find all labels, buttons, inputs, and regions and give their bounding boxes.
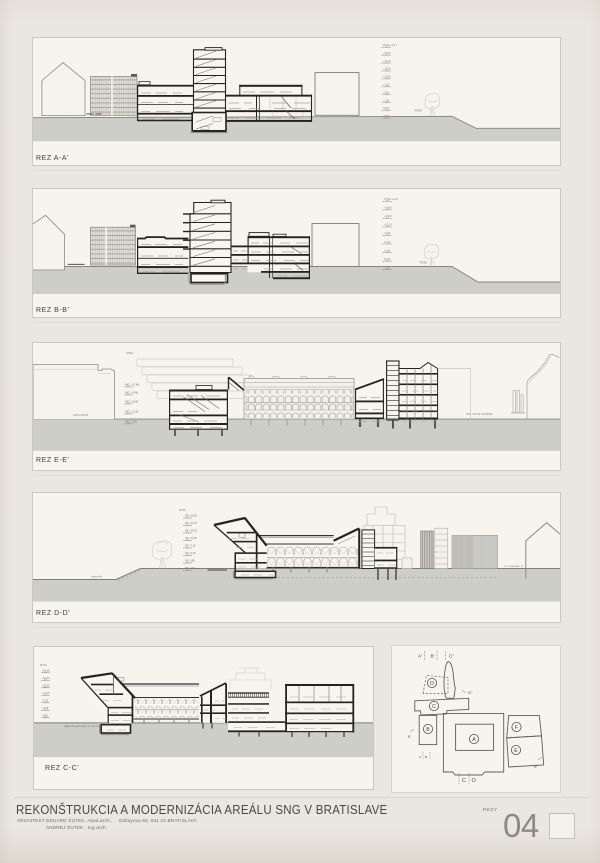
svg-text:A: A <box>472 737 476 743</box>
svg-text:TERÉN: TERÉN <box>414 110 422 113</box>
svg-text:B': B' <box>431 654 435 659</box>
svg-text:+7,15: +7,15 <box>42 699 49 702</box>
svg-text:+5,70: +5,70 <box>384 241 391 244</box>
svg-text:+12,30: +12,30 <box>384 224 392 227</box>
svg-text:C'': C'' <box>449 654 454 659</box>
svg-text:HP +11,25: HP +11,25 <box>185 537 197 540</box>
svg-text:+3,05: +3,05 <box>42 707 49 710</box>
svg-text:HP +15,35: HP +15,35 <box>185 530 197 533</box>
svg-text:HP +3,05: HP +3,05 <box>185 552 196 555</box>
svg-text:±0,00: ±0,00 <box>383 107 390 110</box>
svg-text:D: D <box>430 681 434 687</box>
svg-text:+9,00: +9,00 <box>384 232 391 235</box>
svg-text:-0,85: -0,85 <box>42 714 48 717</box>
svg-text:B: B <box>426 727 430 733</box>
svg-text:ATIKA: ATIKA <box>126 352 133 355</box>
svg-text:E: E <box>514 748 518 754</box>
svg-text:TERÉN: TERÉN <box>419 262 427 265</box>
svg-text:+15,60: +15,60 <box>384 215 392 218</box>
svg-text:D'': D'' <box>468 690 473 695</box>
svg-text:KOTA: KOTA <box>179 509 186 512</box>
svg-text:-3,30: -3,30 <box>383 115 389 118</box>
svg-text:E: E <box>408 734 411 739</box>
svg-text:HP +21,45: HP +21,45 <box>185 522 197 525</box>
svg-text:A: A <box>419 755 421 759</box>
svg-text:F: F <box>515 725 518 731</box>
svg-text:E'': E'' <box>534 764 538 769</box>
svg-text:+4,50: +4,50 <box>383 91 390 94</box>
svg-text:KOTA: KOTA <box>40 664 47 667</box>
svg-text:+7,20: +7,20 <box>383 84 390 87</box>
svg-text:C: C <box>432 704 436 710</box>
svg-text:NÁBREŽIE: NÁBREŽIE <box>91 576 102 579</box>
svg-text:O: O <box>472 778 477 784</box>
svg-text:+18,90: +18,90 <box>384 207 392 210</box>
svg-text:+2,40: +2,40 <box>384 249 391 252</box>
svg-text:C: C <box>462 778 466 784</box>
svg-text:±0,00: ±0,00 <box>384 258 391 261</box>
svg-text:+11,25: +11,25 <box>42 692 50 695</box>
svg-text:+13,80: +13,80 <box>383 68 391 71</box>
svg-text:+20,40: +20,40 <box>383 52 391 55</box>
svg-text:HP +7,15: HP +7,15 <box>185 545 196 548</box>
svg-text:POLOHA NÁBR. M: POLOHA NÁBR. M <box>504 565 523 568</box>
svg-text:+10,50: +10,50 <box>383 76 391 79</box>
svg-text:A': A' <box>418 654 422 659</box>
svg-text:-3,30: -3,30 <box>384 266 390 269</box>
svg-text:NÁBREŽIE ARM.GEN.L.SVOBODU: NÁBREŽIE ARM.GEN.L.SVOBODU <box>64 725 99 728</box>
svg-text:SNG VODNÉ KASÁRNE: SNG VODNÉ KASÁRNE <box>466 413 493 416</box>
svg-text:B': B' <box>425 755 428 759</box>
svg-text:ATIKA +21,0: ATIKA +21,0 <box>384 198 399 201</box>
svg-text:HP +24,05: HP +24,05 <box>185 515 197 518</box>
svg-text:HAT. -0,80: HAT. -0,80 <box>125 420 137 423</box>
svg-text:+17,10: +17,10 <box>383 60 391 63</box>
svg-text:SATRA 98,8M: SATRA 98,8M <box>73 414 88 417</box>
svg-text:+1,20: +1,20 <box>383 99 390 102</box>
svg-text:ATIKA +22,7: ATIKA +22,7 <box>383 44 398 47</box>
